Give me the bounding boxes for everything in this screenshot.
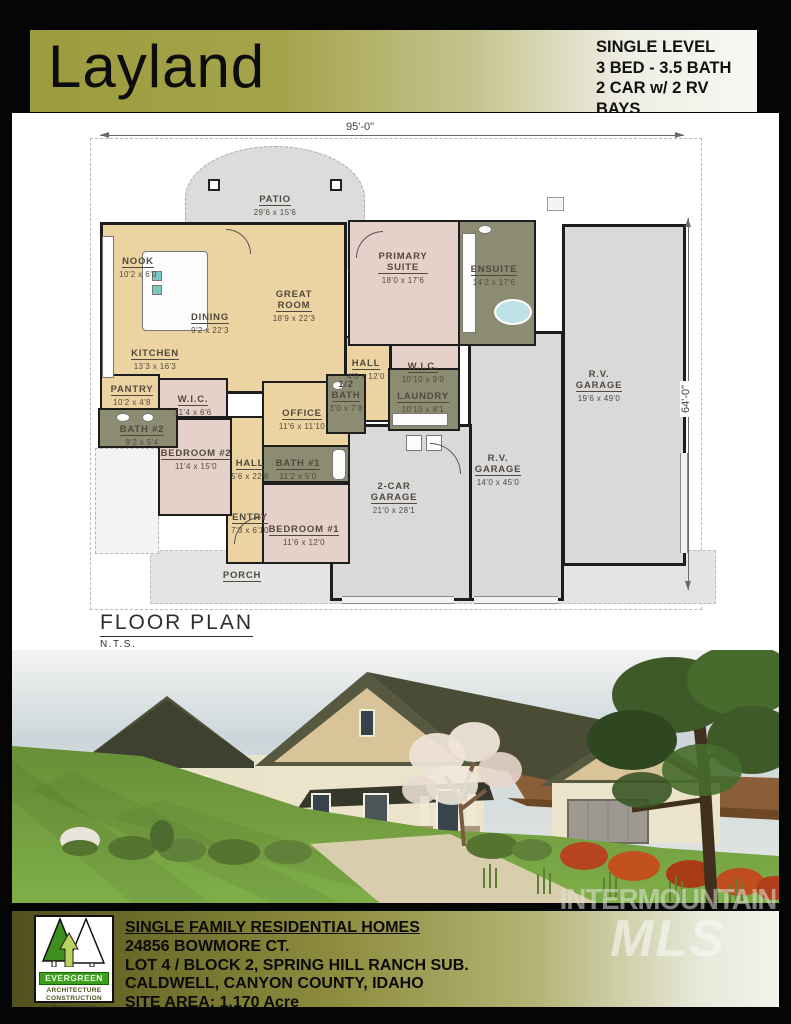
property-lot: LOT 4 / BLOCK 2, SPRING HILL RANCH SUB.: [125, 957, 469, 976]
room-label: 2-CAR GARAGE21'0 x 28'1: [346, 481, 442, 515]
dim-arrow: [100, 132, 109, 138]
caption-scale: N.T.S.: [100, 639, 253, 650]
detail-marker: [547, 197, 564, 211]
room-label: ENTRY7'3 x 6'10: [202, 507, 298, 535]
logo-sub: ARCHITECTURE CONSTRUCTION: [36, 987, 112, 1002]
room-label: KITCHEN13'3 x 16'3: [107, 343, 203, 371]
room-label: BEDROOM #211'4 x 15'0: [148, 443, 244, 471]
room-label: OFFICE11'6 x 11'10: [254, 403, 350, 431]
property-type: SINGLE FAMILY RESIDENTIAL HOMES: [125, 919, 469, 938]
room-label: PRIMARY SUITE18'0 x 17'6: [355, 251, 451, 285]
room-label: HALL4'0 x 12'0: [318, 353, 414, 381]
house-rendering: [12, 650, 779, 903]
caption-title: FLOOR PLAN: [100, 611, 253, 637]
room-label: PORCH: [194, 565, 290, 584]
floor-plan-caption: FLOOR PLAN N.T.S.: [100, 611, 253, 650]
room-label: DINING9'2 x 22'3: [162, 307, 258, 335]
toilet-icon: [478, 225, 492, 234]
property-site-area: SITE AREA: 1.170 Acre: [125, 994, 469, 1013]
dimension-line-top: [100, 135, 684, 136]
room-label: R.V. GARAGE19'6 x 49'0: [551, 369, 647, 403]
cooktop-icon: [152, 285, 162, 295]
dimension-height: 64'-0": [680, 381, 692, 417]
logo-trees-icon: [38, 917, 110, 967]
room-label: ENSUITE14'2 x 17'6: [446, 259, 542, 287]
floor-plan-sheet: 95'-0" 64'-0" PATIO29'6 x 15'6 NOOK10'2 …: [12, 113, 779, 655]
dim-arrow: [685, 581, 691, 590]
garage-door-opening: [680, 453, 688, 553]
room-label: R.V. GARAGE14'0 x 45'0: [450, 453, 546, 487]
property-address: 24856 BOWMORE CT.: [125, 938, 469, 957]
plan-title: Layland: [48, 32, 265, 101]
patio-post: [330, 179, 342, 191]
property-city: CALDWELL, CANYON COUNTY, IDAHO: [125, 975, 469, 994]
spec-line: 3 BED - 3.5 BATH: [596, 58, 757, 79]
washer-dryer: [406, 435, 422, 451]
logo-copyright: © COPYRIGHT 2023-2024 LCL: [36, 1004, 112, 1009]
logo-name: EVERGREEN: [39, 972, 109, 985]
header-banner: Layland SINGLE LEVEL 3 BED - 3.5 BATH 2 …: [30, 30, 757, 112]
soaker-tub: [494, 299, 532, 325]
footer-banner: EVERGREEN ARCHITECTURE CONSTRUCTION © CO…: [12, 911, 779, 1007]
room-label: BATH #29'2 x 5'4: [94, 419, 190, 447]
dim-arrow: [685, 218, 691, 227]
room-label: NOOK10'2 x 6'0: [90, 251, 186, 279]
evergreen-logo: EVERGREEN ARCHITECTURE CONSTRUCTION © CO…: [34, 915, 114, 1003]
property-info: SINGLE FAMILY RESIDENTIAL HOMES 24856 BO…: [125, 919, 469, 1013]
room-label: W.I.C.11'4 x 6'6: [145, 389, 241, 417]
garage-door-opening: [342, 596, 454, 604]
laundry-counter: [392, 413, 448, 426]
flyer-page: Layland SINGLE LEVEL 3 BED - 3.5 BATH 2 …: [0, 0, 791, 1024]
dimension-width: 95'-0": [342, 121, 378, 133]
spec-line: SINGLE LEVEL: [596, 37, 757, 58]
dim-arrow: [675, 132, 684, 138]
garage-door-opening: [474, 596, 558, 604]
room-label: GREAT ROOM18'9 x 22'3: [246, 289, 342, 323]
room-label: PATIO29'6 x 15'6: [227, 189, 323, 217]
patio-post: [208, 179, 220, 191]
